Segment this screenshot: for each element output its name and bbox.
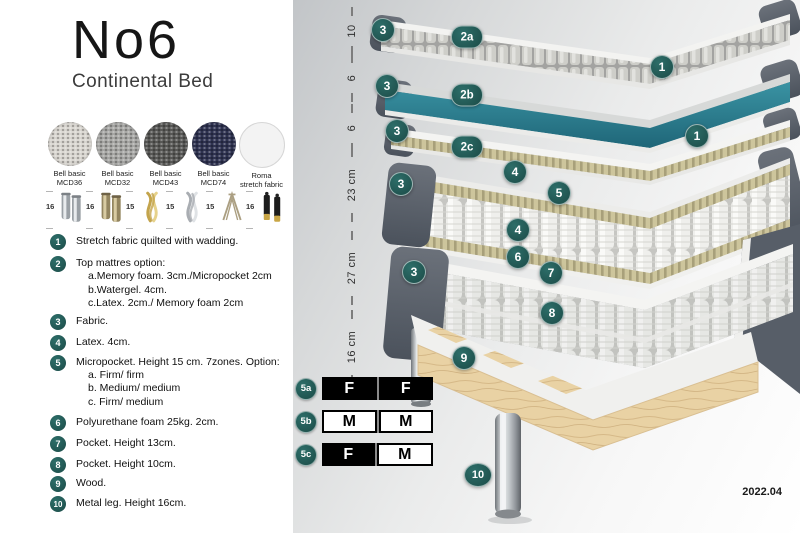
feature-number-badge: 7 xyxy=(50,436,66,452)
feature-sub-option: a.Memory foam. 3cm./Micropocket 2cm xyxy=(76,270,272,284)
leg-options-row: 16 16 15 15 15 16 xyxy=(46,187,288,233)
firmness-bar: MM xyxy=(322,410,433,433)
firmness-row-badge: 5c xyxy=(295,444,317,466)
feature-body: Top mattres option:a.Memory foam. 3cm./M… xyxy=(76,257,272,311)
fabric-swatch-circle xyxy=(144,122,188,166)
feature-item: 6Polyurethane foam 25kg. 2cm. xyxy=(50,416,302,431)
feature-text: Micropocket. Height 15 cm. 7zones. Optio… xyxy=(76,356,280,369)
dash-mark xyxy=(126,191,133,192)
feature-number-badge: 1 xyxy=(50,234,66,250)
dash-mark xyxy=(86,228,93,229)
black-gold-leg xyxy=(259,191,285,228)
feature-item: 2Top mattres option:a.Memory foam. 3cm./… xyxy=(50,257,302,311)
firmness-cell: M xyxy=(379,410,434,433)
feature-number-badge: 4 xyxy=(50,335,66,351)
feature-sub-option: b.Watergel. 4cm. xyxy=(76,284,272,298)
leg-option: 15 xyxy=(166,187,206,233)
feature-item: 7Pocket. Height 13cm. xyxy=(50,437,302,452)
dash-mark xyxy=(166,191,173,192)
brand-block: No6 Continental Bed xyxy=(72,12,213,93)
firmness-cell: M xyxy=(377,443,434,466)
fabric-swatch-label: Bell basicMCD36 xyxy=(53,169,85,188)
firmness-cell: M xyxy=(322,410,377,433)
dash-mark xyxy=(46,191,53,192)
firmness-table: 5aFF5bMM5cFM xyxy=(295,377,433,476)
hairpin-leg xyxy=(219,191,245,228)
feature-text: Metal leg. Height 16cm. xyxy=(76,497,186,510)
dash-mark xyxy=(246,228,253,229)
feature-item: 10Metal leg. Height 16cm. xyxy=(50,497,302,512)
feature-text: Polyurethane foam 25kg. 2cm. xyxy=(76,416,218,429)
feature-number-badge: 5 xyxy=(50,355,66,371)
leg-option: 15 xyxy=(126,187,166,233)
feature-item: 3Fabric. xyxy=(50,315,302,330)
leg-option: 16 xyxy=(246,187,286,233)
feature-item: 4Latex. 4cm. xyxy=(50,336,302,351)
leg-option: 16 xyxy=(46,187,86,233)
fabric-swatch: Bell basicMCD74 xyxy=(190,122,237,190)
fabric-swatch: Romastretch fabric xyxy=(238,122,285,190)
feature-text: Pocket. Height 10cm. xyxy=(76,458,176,471)
feature-body: Metal leg. Height 16cm. xyxy=(76,497,186,510)
fabric-swatch-label: Bell basicMCD43 xyxy=(149,169,181,188)
leg-option: 15 xyxy=(206,187,246,233)
cylinder-silver-leg xyxy=(59,191,85,228)
feature-body: Polyurethane foam 25kg. 2cm. xyxy=(76,416,218,429)
firmness-cell: F xyxy=(322,377,377,400)
leg-height-label: 15 xyxy=(206,202,214,211)
firmness-row-badge: 5a xyxy=(295,378,317,400)
leg-height-label: 16 xyxy=(46,202,54,211)
feature-sub-option: c.Latex. 2cm./ Memory foam 2cm xyxy=(76,297,272,311)
feature-sub-option: b. Medium/ medium xyxy=(76,382,280,396)
feature-body: Fabric. xyxy=(76,315,108,328)
fabric-swatch: Bell basicMCD36 xyxy=(46,122,93,190)
dash-mark xyxy=(206,191,213,192)
twisted-silver-leg xyxy=(179,191,205,228)
dash-mark xyxy=(126,228,133,229)
fabric-swatch-label: Bell basicMCD32 xyxy=(101,169,133,188)
feature-text: Top mattres option: xyxy=(76,257,272,270)
feature-number-badge: 9 xyxy=(50,476,66,492)
firmness-row: 5bMM xyxy=(295,410,433,433)
dash-mark xyxy=(46,228,53,229)
product-sheet: No6 Continental Bed Bell basicMCD36Bell … xyxy=(0,0,800,533)
feature-number-badge: 6 xyxy=(50,415,66,431)
feature-text: Pocket. Height 13cm. xyxy=(76,437,176,450)
feature-body: Pocket. Height 13cm. xyxy=(76,437,176,450)
feature-sub-option: c. Firm/ medium xyxy=(76,396,280,410)
firmness-row: 5aFF xyxy=(295,377,433,400)
page-title: No6 xyxy=(72,12,213,69)
feature-list: 1Stretch fabric quilted with wadding.2To… xyxy=(50,235,302,512)
fabric-swatch-row: Bell basicMCD36Bell basicMCD32Bell basic… xyxy=(46,122,288,190)
feature-body: Wood. xyxy=(76,477,106,490)
feature-sub-option: a. Firm/ firm xyxy=(76,369,280,383)
twisted-gold-leg xyxy=(139,191,165,228)
firmness-row-badge: 5b xyxy=(295,411,317,433)
fabric-swatch-circle xyxy=(96,122,140,166)
firmness-cell: F xyxy=(379,377,434,400)
feature-number-badge: 10 xyxy=(50,496,66,512)
feature-item: 5Micropocket. Height 15 cm. 7zones. Opti… xyxy=(50,356,302,410)
version-label: 2022.04 xyxy=(712,486,782,498)
firmness-row: 5cFM xyxy=(295,443,433,466)
metal-leg-front xyxy=(488,413,532,524)
fabric-swatch-circle xyxy=(192,122,236,166)
dash-mark xyxy=(86,191,93,192)
feature-number-badge: 3 xyxy=(50,314,66,330)
feature-body: Latex. 4cm. xyxy=(76,336,130,349)
fabric-swatch: Bell basicMCD32 xyxy=(94,122,141,190)
feature-item: 9Wood. xyxy=(50,477,302,492)
feature-text: Wood. xyxy=(76,477,106,490)
dash-mark xyxy=(206,228,213,229)
feature-item: 1Stretch fabric quilted with wadding. xyxy=(50,235,302,250)
firmness-bar: FM xyxy=(322,443,433,466)
feature-item: 8Pocket. Height 10cm. xyxy=(50,458,302,473)
fabric-swatch-circle xyxy=(48,122,92,166)
leg-height-label: 16 xyxy=(246,202,254,211)
fabric-swatch-circle xyxy=(239,122,285,168)
dash-mark xyxy=(166,228,173,229)
leg-option: 16 xyxy=(86,187,126,233)
leg-height-label: 16 xyxy=(86,202,94,211)
feature-number-badge: 2 xyxy=(50,256,66,272)
leg-height-label: 15 xyxy=(126,202,134,211)
layer-top-mattress-2a xyxy=(369,0,800,89)
leg-height-label: 15 xyxy=(166,202,174,211)
fabric-swatch-label: Bell basicMCD74 xyxy=(197,169,229,188)
feature-text: Stretch fabric quilted with wadding. xyxy=(76,235,238,248)
dash-mark xyxy=(246,191,253,192)
cylinder-bronze-leg xyxy=(99,191,125,228)
feature-body: Micropocket. Height 15 cm. 7zones. Optio… xyxy=(76,356,280,410)
feature-body: Pocket. Height 10cm. xyxy=(76,458,176,471)
feature-text: Latex. 4cm. xyxy=(76,336,130,349)
fabric-swatch: Bell basicMCD43 xyxy=(142,122,189,190)
firmness-cell: F xyxy=(322,443,375,466)
feature-text: Fabric. xyxy=(76,315,108,328)
feature-body: Stretch fabric quilted with wadding. xyxy=(76,235,238,248)
page-subtitle: Continental Bed xyxy=(72,71,213,93)
left-panel: No6 Continental Bed Bell basicMCD36Bell … xyxy=(0,0,293,533)
feature-number-badge: 8 xyxy=(50,457,66,473)
firmness-bar: FF xyxy=(322,377,433,400)
